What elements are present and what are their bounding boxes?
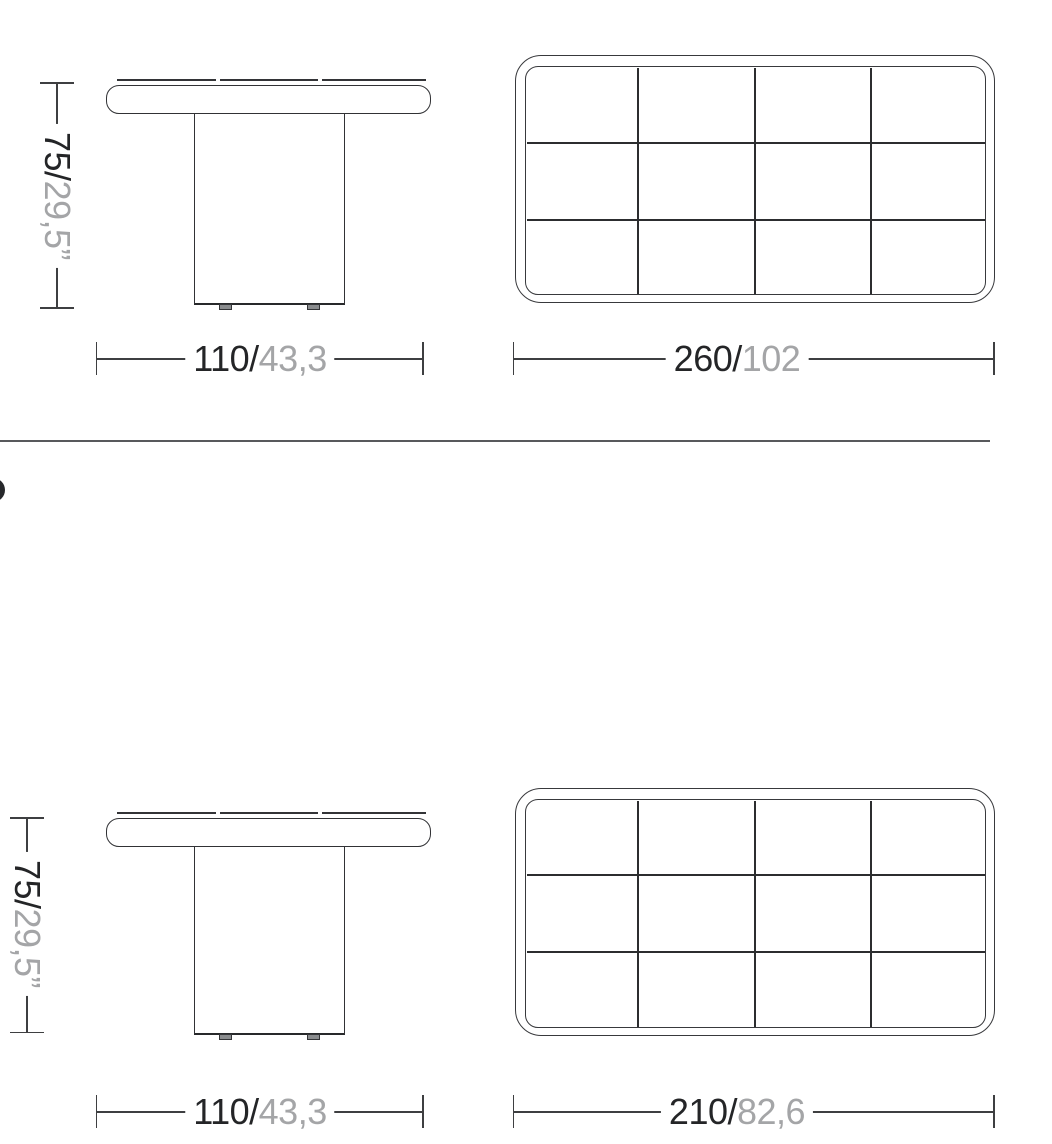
dim-cap-bottom <box>40 307 74 309</box>
tabletop-outline-inner <box>525 799 986 1028</box>
width-dim-label: 110/43,3 <box>185 1093 334 1131</box>
pedestal-foot-right <box>307 1034 320 1040</box>
width-value-cm: 260/ <box>674 338 742 379</box>
dim-tick-right <box>422 1095 424 1128</box>
tabletop-profile <box>106 818 431 848</box>
grid-line-vertical-1 <box>637 801 639 1027</box>
width-dim-label: 210/82,6 <box>661 1093 813 1131</box>
width-dim-label: 110/43,3 <box>185 340 334 378</box>
dim-tick-left <box>96 342 98 375</box>
grid-line-vertical-2 <box>754 68 756 294</box>
page-edge-logo-fragment <box>0 478 5 502</box>
grid-line-vertical-3 <box>870 801 872 1027</box>
width-value-cm: 210/ <box>669 1091 737 1132</box>
dim-tick-right <box>422 342 424 375</box>
tabletop-seam-segment <box>322 812 426 814</box>
width-value-inch: 43,3 <box>259 338 327 379</box>
tabletop-seam-segment <box>322 79 426 81</box>
height-value-cm: 75/ <box>37 132 78 181</box>
section-divider <box>0 440 990 442</box>
pedestal-base <box>194 112 346 305</box>
width-value-inch: 102 <box>742 338 801 379</box>
grid-line-horizontal-1 <box>527 874 985 876</box>
tabletop-seam-segment <box>117 79 216 81</box>
width-value-cm: 110/ <box>193 338 258 379</box>
tabletop-outline-inner <box>525 66 986 295</box>
height-dim-label: 75/29,5” <box>38 124 76 268</box>
width-value-inch: 43,3 <box>259 1091 327 1132</box>
width-value-cm: 110/ <box>193 1091 258 1132</box>
height-value-inch: 29,5” <box>37 180 78 260</box>
dim-tick-right <box>993 1095 995 1128</box>
dim-cap-top <box>40 82 74 84</box>
dim-tick-left <box>96 1095 98 1128</box>
dim-tick-left <box>513 342 515 375</box>
width-dim-label: 260/102 <box>666 340 809 378</box>
tabletop-seam-segment <box>220 79 318 81</box>
height-value-inch: 29,5” <box>7 908 48 988</box>
dim-tick-right <box>993 342 995 375</box>
pedestal-base <box>194 845 346 1035</box>
tabletop-seam-segment <box>220 812 318 814</box>
height-dim-label: 75/29,5” <box>8 852 46 996</box>
grid-line-vertical-3 <box>870 68 872 294</box>
pedestal-foot-left <box>219 1034 232 1040</box>
height-value-cm: 75/ <box>7 860 48 909</box>
pedestal-foot-right <box>307 304 320 310</box>
grid-line-vertical-1 <box>637 68 639 294</box>
dim-cap-bottom <box>10 1032 44 1034</box>
grid-line-horizontal-1 <box>527 142 985 144</box>
grid-line-horizontal-2 <box>527 951 985 953</box>
width-value-inch: 82,6 <box>737 1091 805 1132</box>
dim-tick-left <box>513 1095 515 1128</box>
tabletop-profile <box>106 85 431 115</box>
tabletop-seam-segment <box>117 812 216 814</box>
drawing-sheet: 75/29,5” 110/43,3 260/102 <box>0 0 1052 1144</box>
grid-line-horizontal-2 <box>527 219 985 221</box>
pedestal-foot-left <box>219 304 232 310</box>
grid-line-vertical-2 <box>754 801 756 1027</box>
dim-cap-top <box>10 817 44 819</box>
